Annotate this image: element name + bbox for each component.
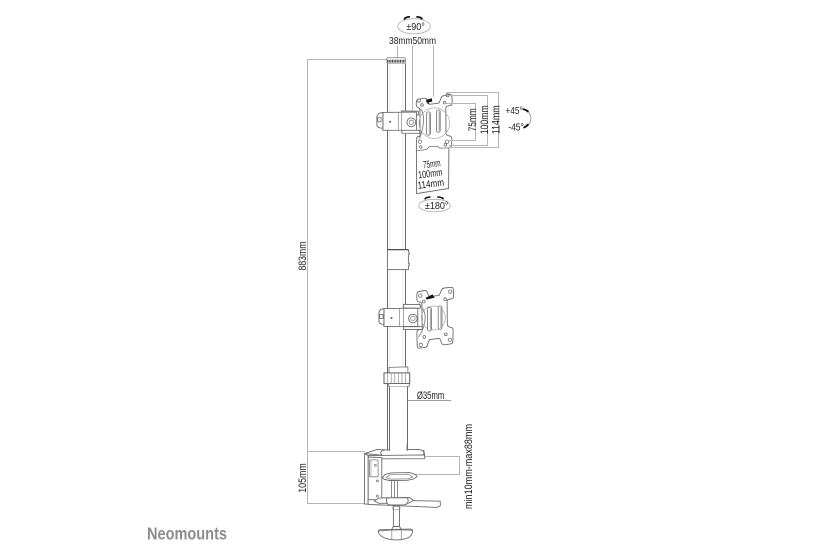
svg-text:±90°: ±90°	[406, 22, 424, 33]
svg-text:+45°: +45°	[505, 106, 522, 117]
svg-text:105mm: 105mm	[297, 463, 309, 493]
svg-text:114mm: 114mm	[490, 105, 502, 134]
svg-text:-45°: -45°	[508, 123, 524, 134]
svg-text:min10mm-max88mm: min10mm-max88mm	[463, 424, 475, 509]
svg-text:100mm: 100mm	[479, 105, 491, 134]
svg-text:38mm50mm: 38mm50mm	[389, 36, 436, 47]
svg-text:Neomounts: Neomounts	[147, 524, 227, 544]
svg-text:883mm: 883mm	[297, 242, 309, 271]
svg-text:±180°: ±180°	[425, 201, 449, 212]
svg-text:Ø35mm: Ø35mm	[417, 390, 445, 402]
svg-text:75mm: 75mm	[467, 108, 479, 131]
